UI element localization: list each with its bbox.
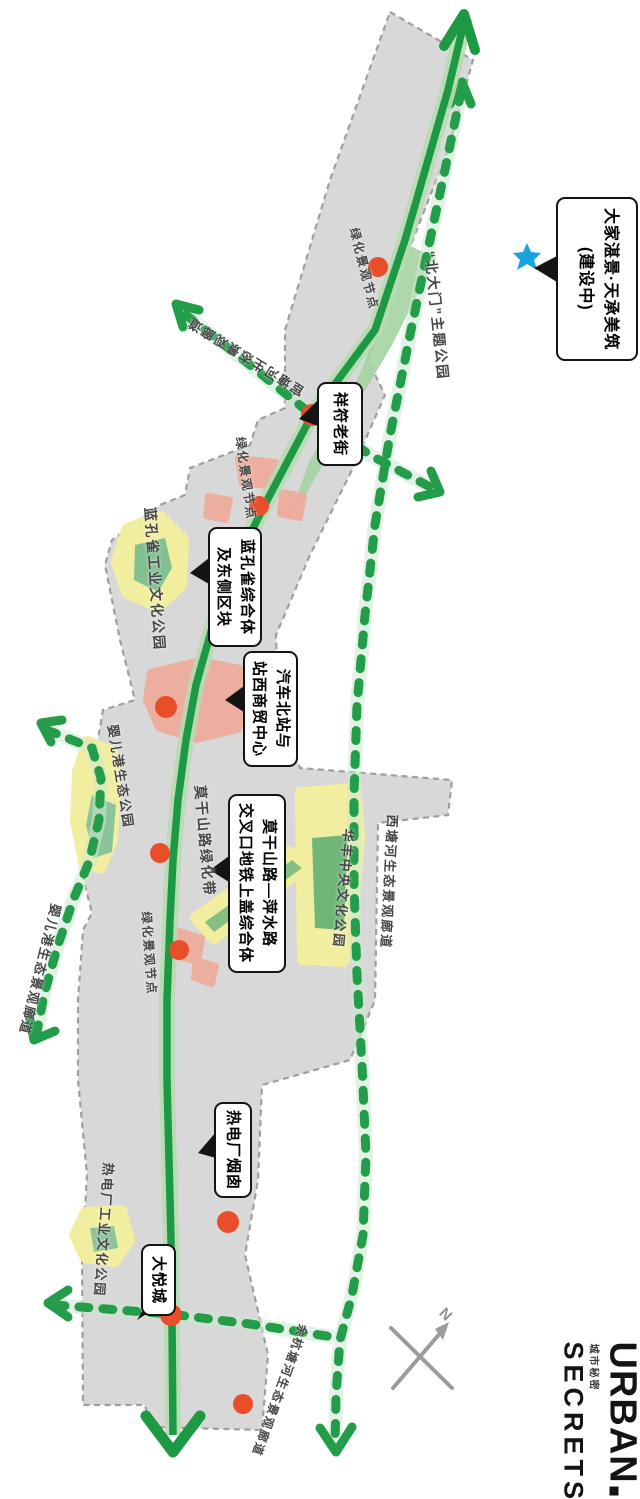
callout-line: 站西商贸中心 (247, 661, 270, 757)
planning-map-canvas: 绿化景观节点 “北大门”主题公园 宦塘河生态景观廊道 绿化景观节点 蓝孔雀工业文… (0, 0, 640, 1499)
logo-urban-text: URBAN (604, 1342, 640, 1484)
callout-line: 莫干山路—萍水路 (257, 803, 280, 963)
callout-xiangfu-old-street: 祥符老街 (317, 382, 363, 466)
callout-line: 大家湛景·天承美筑 (597, 208, 622, 350)
callout-line: 热电厂烟囱 (221, 1110, 244, 1190)
callout-dajia-project: 大家湛景·天承美筑 (建设中) (556, 197, 638, 361)
callout-line: 蓝孔雀综合体 (235, 539, 258, 635)
callout-power-plant-chimney: 热电厂烟囱 (214, 1102, 252, 1198)
callout-line: 祥符老街 (328, 392, 351, 456)
compass-icon (391, 1322, 452, 1388)
callout-line: 及东侧区块 (212, 539, 235, 635)
callout-line: 汽车北站与 (271, 661, 294, 757)
logo-chinese-text: 城市秘密 (587, 1344, 602, 1499)
logo-mark-icon (609, 1487, 618, 1496)
brand-logo: URBAN 城市秘密 SECRETS (553, 1342, 640, 1499)
callout-joy-city: 大悦城 (141, 1244, 176, 1316)
logo-secrets-text: SECRETS (559, 1342, 586, 1499)
callout-north-bus-station: 汽车北站与 站西商贸中心 (243, 651, 298, 767)
project-star-icon (513, 243, 541, 270)
callout-blue-peacock-complex: 蓝孔雀综合体 及东侧区块 (208, 527, 262, 647)
callout-line: (建设中) (572, 208, 597, 350)
callout-line: 交叉口地铁上盖综合体 (234, 803, 257, 963)
callout-line: 大悦城 (147, 1256, 170, 1304)
callout-metro-tod-complex: 莫干山路—萍水路 交叉口地铁上盖综合体 (228, 794, 286, 973)
